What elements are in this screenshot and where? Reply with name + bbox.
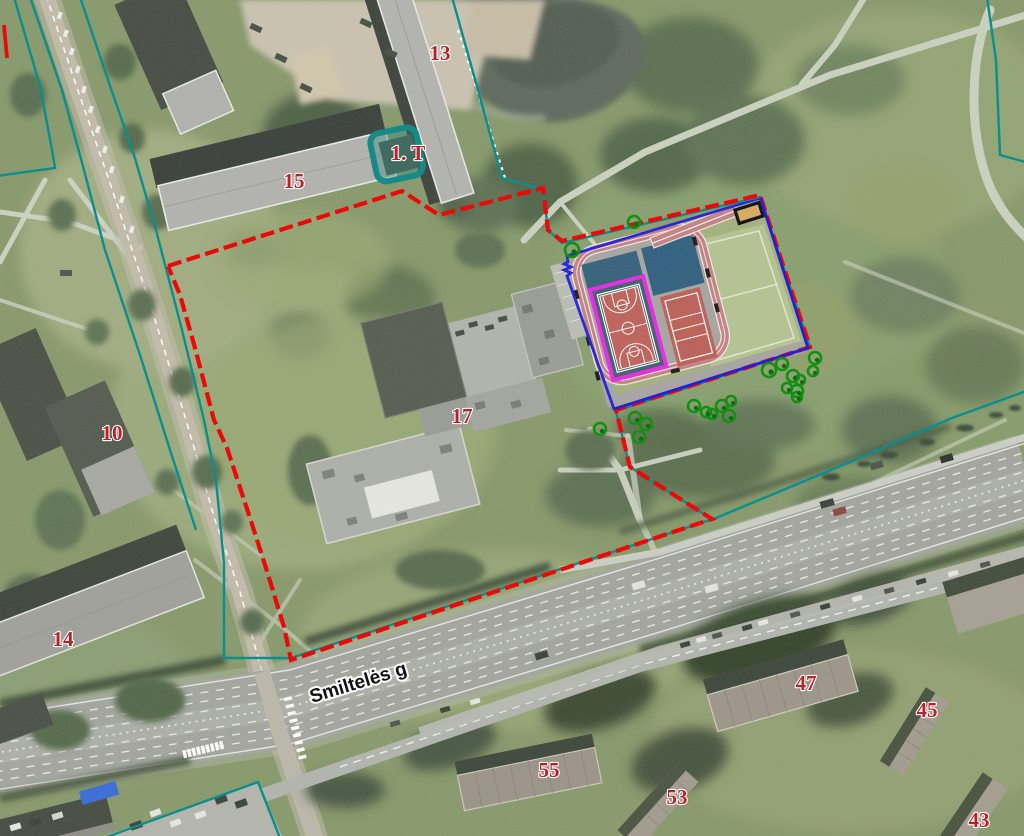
svg-text:15: 15	[284, 169, 305, 193]
svg-text:43: 43	[969, 808, 990, 832]
svg-text:10: 10	[102, 421, 123, 445]
svg-text:17: 17	[452, 404, 473, 428]
svg-text:53: 53	[667, 785, 688, 809]
svg-text:14: 14	[53, 627, 75, 651]
svg-text:45: 45	[917, 698, 938, 722]
svg-text:47: 47	[796, 671, 817, 695]
svg-text:55: 55	[539, 758, 560, 782]
svg-text:1. T: 1. T	[391, 141, 426, 165]
svg-text:13: 13	[430, 41, 451, 65]
